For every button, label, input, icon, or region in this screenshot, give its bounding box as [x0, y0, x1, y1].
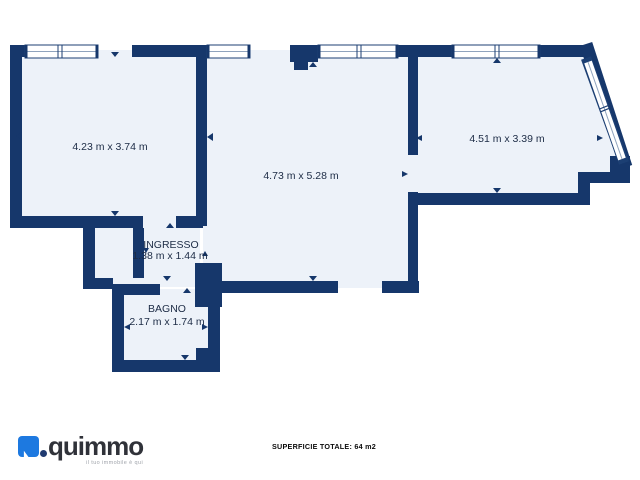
- window-icon: [207, 45, 250, 58]
- window-icon: [452, 45, 540, 58]
- logo-text-column: quimmo il tuo immobile è qui: [48, 433, 143, 466]
- logo-wordmark: quimmo: [48, 433, 143, 459]
- room-bagno-name: BAGNO: [148, 303, 186, 315]
- quimmo-logo-icon: [18, 436, 40, 458]
- window-icon: [25, 45, 98, 58]
- quimmo-logo: quimmo il tuo immobile è qui: [18, 433, 143, 466]
- room-left-dimensions: 4.23 m x 3.74 m: [72, 141, 148, 153]
- logo-dot-icon: [40, 450, 47, 457]
- room-center-fill: [203, 50, 412, 288]
- room-center-dimensions: 4.73 m x 5.28 m: [263, 170, 339, 182]
- floorplan-page: 4.23 m x 3.74 m 4.73 m x 5.28 m 4.51 m x…: [0, 0, 640, 480]
- room-ingresso-dimensions: 1.38 m x 1.44 m: [132, 250, 208, 262]
- room-right-dimensions: 4.51 m x 3.39 m: [469, 133, 545, 145]
- room-bagno-dimensions: 2.17 m x 1.74 m: [129, 316, 205, 328]
- room-fills: [15, 50, 624, 364]
- total-area-label: SUPERFICIE TOTALE: 64 m2: [272, 442, 376, 451]
- window-icon: [318, 45, 398, 58]
- logo-square-icon: [18, 436, 39, 457]
- floor-plan: 4.23 m x 3.74 m 4.73 m x 5.28 m 4.51 m x…: [0, 0, 640, 480]
- room-left-fill: [15, 50, 203, 221]
- logo-tagline: il tuo immobile è qui: [86, 460, 143, 466]
